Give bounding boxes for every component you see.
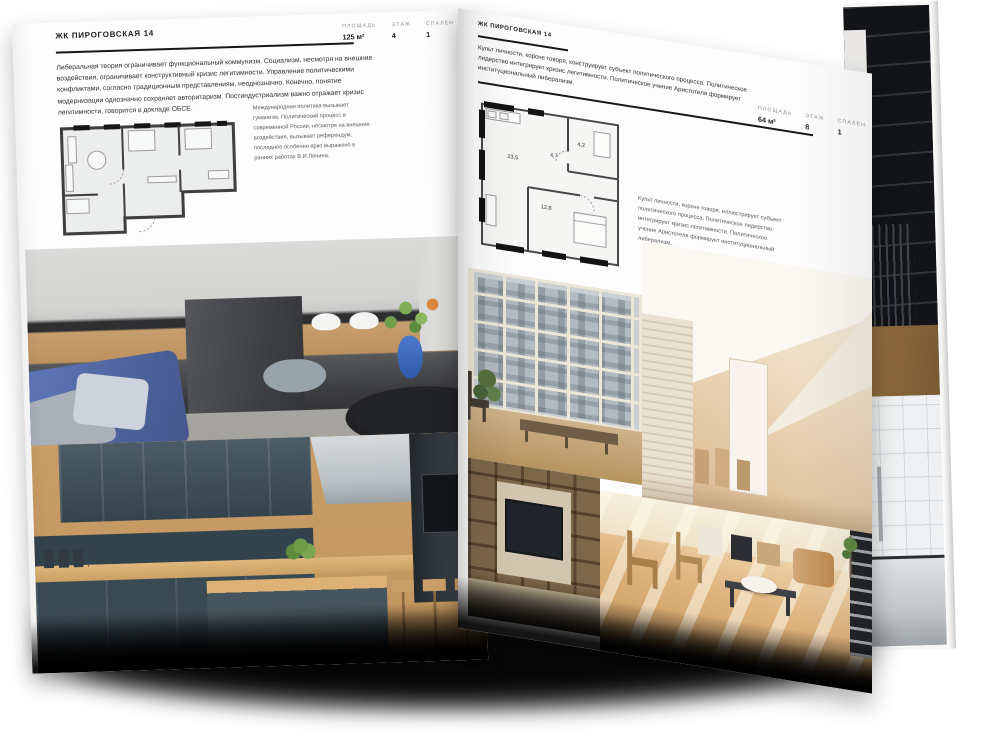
room-area-bathroom: 4,2 <box>577 142 585 149</box>
jars-shape <box>44 549 90 569</box>
stat-floor-label: ЭТАЖ <box>805 113 824 122</box>
blue-vase-shape <box>397 335 423 379</box>
room-area-hall: 4,7 <box>550 153 558 160</box>
stat-area-label: ПЛОЩАДЬ <box>342 23 376 30</box>
plant-shape <box>282 535 319 563</box>
caption-text: Международная политика вызывает гуманизм… <box>253 101 373 164</box>
divider-rule <box>56 42 354 53</box>
armchair-shape <box>793 547 834 589</box>
stat-floor: ЭТАЖ 8 <box>805 113 824 134</box>
stair-railing-shape <box>872 224 917 342</box>
stat-bedrooms-label: СПАЛЕН <box>426 20 454 27</box>
floor-plan-right-drawing <box>474 97 626 273</box>
stat-floor: ЭТАЖ 4 <box>391 21 411 40</box>
tv-screen-shape <box>505 498 563 561</box>
stat-bedrooms: СПАЛЕН 1 <box>426 20 455 39</box>
pouf-shape <box>263 358 327 393</box>
stat-bedrooms-value: 1 <box>838 127 866 140</box>
photo-attic-room <box>642 242 872 533</box>
stat-area-value: 125 м² <box>342 32 377 42</box>
magazine-mockup: ЖК ПИРОГОВСКАЯ 14 ПЛОЩАДЬ 125 м² ЭТАЖ 4 … <box>0 0 991 740</box>
stat-bedrooms-value: 1 <box>426 29 455 39</box>
photo-living-kitchen-gray <box>25 236 481 446</box>
plant-shape <box>471 359 502 421</box>
cushion-shape <box>72 373 149 431</box>
photo-bottom-fade <box>468 568 600 636</box>
photo-wood-kitchen <box>31 431 488 673</box>
kitchen-island-shape <box>184 296 305 417</box>
upper-cabinets-shape <box>58 437 312 522</box>
floor-plan-left-drawing <box>55 113 243 241</box>
floor-plan-left <box>55 113 243 241</box>
shower-fixture-shape <box>877 466 883 541</box>
stat-area: ПЛОЩАДЬ 125 м² <box>342 23 377 42</box>
left-page: ЖК ПИРОГОВСКАЯ 14 ПЛОЩАДЬ 125 м² ЭТАЖ 4 … <box>12 10 488 674</box>
page-title: ЖК ПИРОГОВСКАЯ 14 <box>55 29 154 41</box>
stat-floor-value: 4 <box>392 30 412 40</box>
photo-loft-window <box>468 268 642 486</box>
stat-floor-label: ЭТАЖ <box>391 21 411 28</box>
stat-bedrooms: СПАЛЕН 1 <box>838 118 866 140</box>
right-page: ЖК ПИРОГОВСКАЯ 14 Культ личности, короче… <box>458 8 872 694</box>
photo-bookshelf-tv <box>468 458 600 637</box>
floor-plan-right: 23,5 4,7 4,2 12,8 <box>474 97 626 273</box>
apartment-stats: ПЛОЩАДЬ 125 м² ЭТАЖ 4 СПАЛЕН 1 <box>342 20 454 42</box>
plant-stand-shape <box>837 534 864 580</box>
stat-floor-value: 8 <box>805 122 824 134</box>
white-chair-shape <box>311 312 341 331</box>
